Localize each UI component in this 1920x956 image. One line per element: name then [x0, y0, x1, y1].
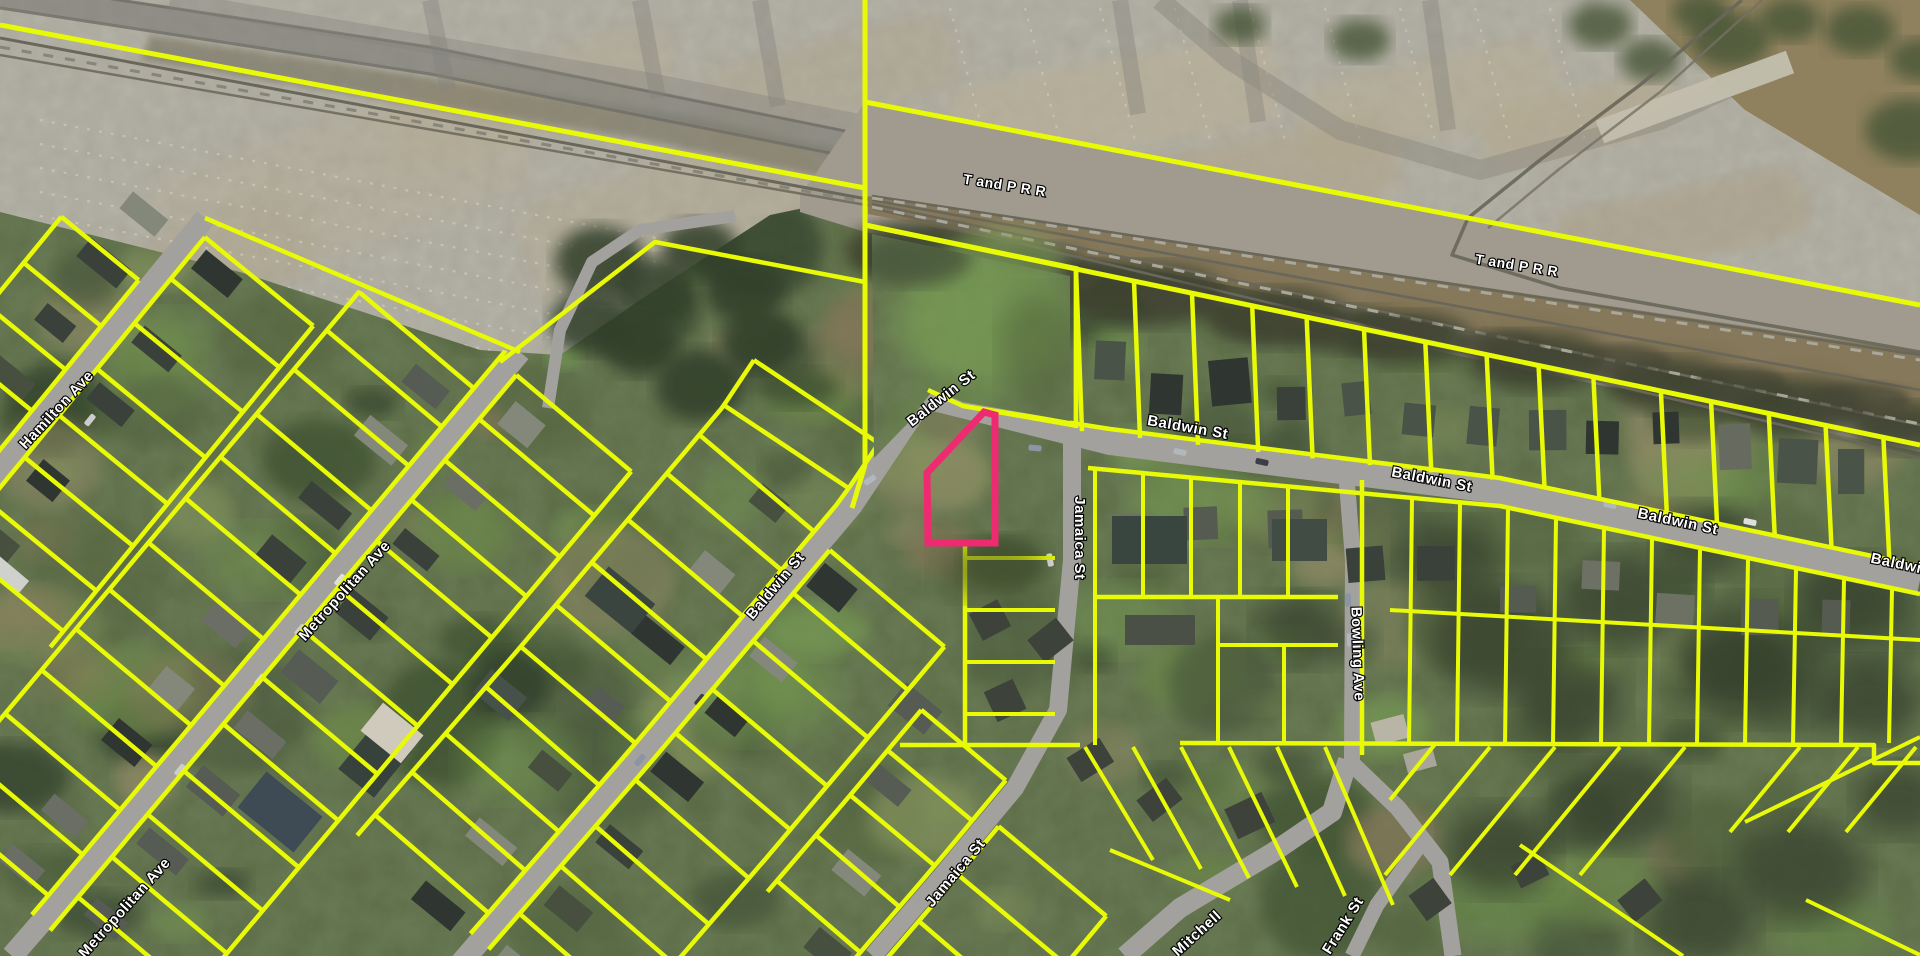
svg-text:Bowling Ave: Bowling Ave [1347, 606, 1367, 701]
svg-text:Jamaica St: Jamaica St [1071, 496, 1088, 579]
